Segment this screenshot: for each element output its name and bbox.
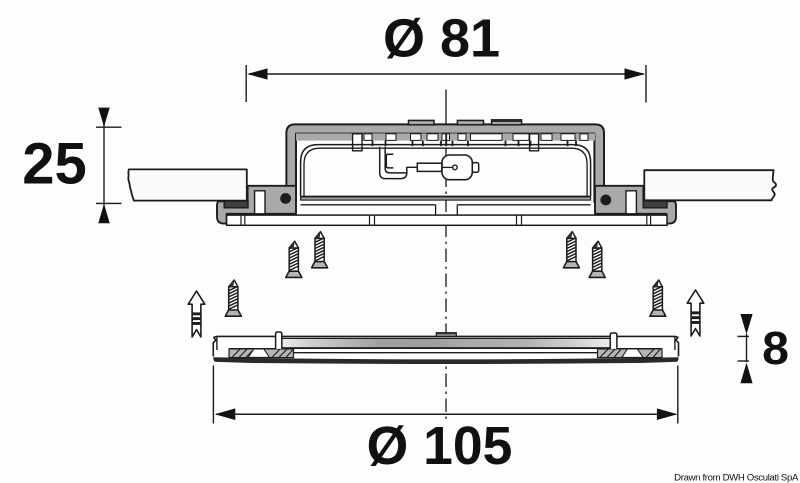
svg-text:25: 25 xyxy=(22,132,87,197)
svg-text:Ø 105: Ø 105 xyxy=(367,417,513,476)
svg-text:8: 8 xyxy=(762,322,789,374)
svg-text:Ø 81: Ø 81 xyxy=(383,8,500,68)
svg-text:Drawn from DWH Osculati SpA: Drawn from DWH Osculati SpA xyxy=(674,473,799,483)
